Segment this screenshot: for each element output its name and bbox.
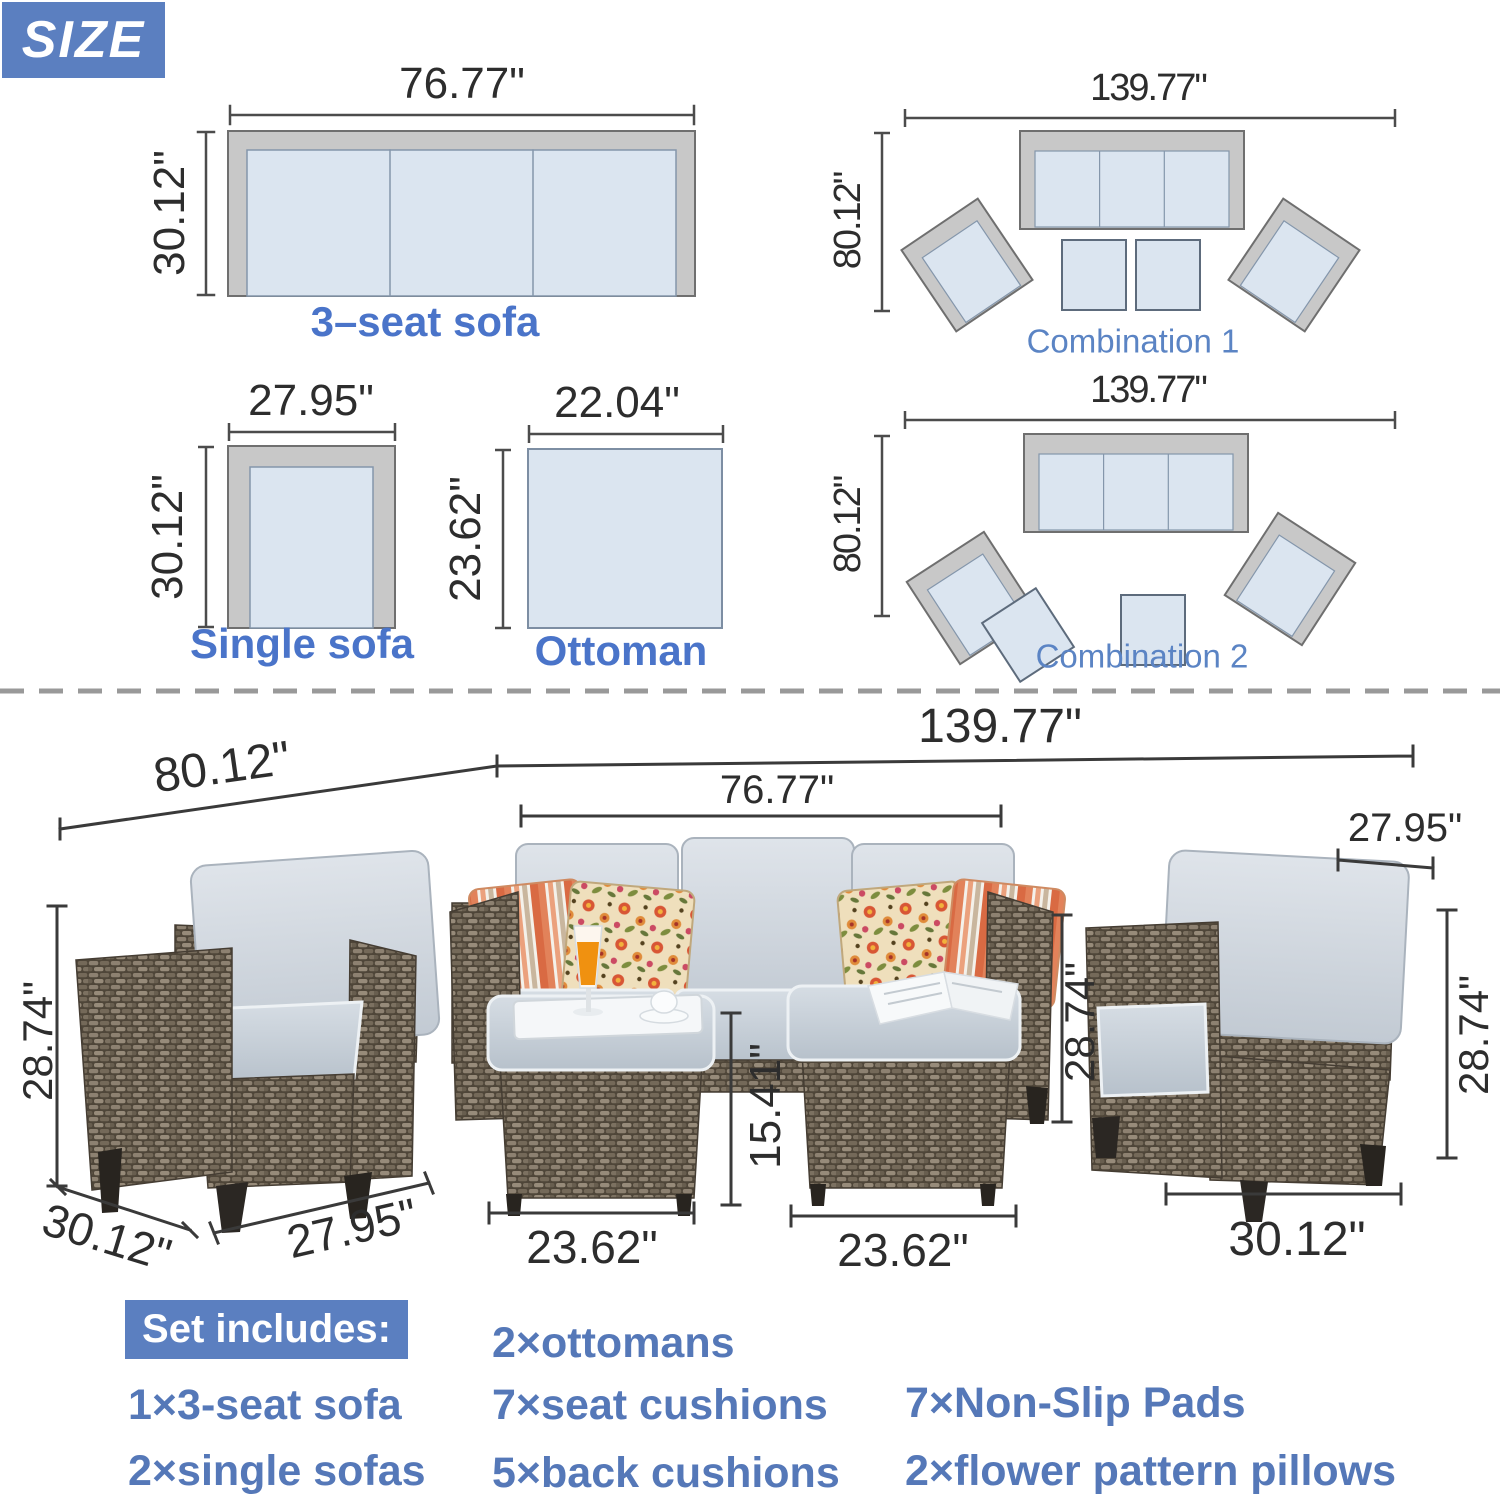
photo-dim-set-width: 139.77" [918, 703, 1082, 751]
size-badge: SIZE [2, 2, 165, 78]
photo-dim-ottoman-height: 15.41" [744, 1043, 788, 1169]
photo-dim-left-ottoman-width: 23.62" [526, 1224, 657, 1270]
photo-dim-sofa-width: 76.77" [720, 770, 834, 810]
photo-dim-right-chair-height: 28.74" [1453, 975, 1495, 1095]
glass-stem [586, 986, 591, 1012]
diagram-ottoman [495, 425, 723, 628]
dim-combo2-width: 139.77" [1090, 371, 1206, 409]
photo-dim-right-chair-depth: 30.12" [1228, 1216, 1365, 1264]
photo-left-armchair [76, 850, 440, 1233]
dim-combo1-width: 139.77" [1090, 69, 1206, 107]
photo-dim-right-ottoman-width: 23.62" [837, 1227, 968, 1273]
set-item-3seat-sofa: 1×3-seat sofa [128, 1384, 402, 1427]
set-item-flower-pillows: 2×flower pattern pillows [905, 1450, 1396, 1493]
dim-3seat-width: 76.77" [399, 62, 525, 106]
dim-ottoman-width: 22.04" [554, 381, 680, 425]
set-item-back-cushions: 5×back cushions [492, 1452, 840, 1495]
dim-combo2-depth: 80.12" [829, 477, 867, 574]
label-single-sofa: Single sofa [190, 623, 414, 665]
label-combination-1: Combination 1 [1027, 325, 1240, 358]
photo-right-armchair [1086, 850, 1410, 1222]
dim-3seat-depth: 30.12" [148, 150, 192, 276]
set-item-single-sofas: 2×single sofas [128, 1450, 426, 1493]
set-item-seat-cushions: 7×seat cushions [492, 1384, 828, 1427]
diagram-3seat-sofa [198, 106, 695, 296]
photo-dim-right-chair-top-width: 27.95" [1348, 808, 1462, 848]
size-infographic: SIZE 76.77" 30.12" 3–seat sofa 27.95" 30… [0, 0, 1500, 1500]
diagram-single-sofa [198, 423, 395, 628]
teacup [651, 991, 677, 1013]
set-item-ottomans: 2×ottomans [492, 1322, 735, 1365]
label-3seat-sofa: 3–seat sofa [311, 301, 540, 343]
label-combination-2: Combination 2 [1036, 640, 1249, 673]
dim-combo1-depth: 80.12" [829, 173, 867, 270]
diagram-combination-1 [874, 109, 1395, 331]
photo-dim-sofa-height: 28.74" [1059, 962, 1101, 1082]
dim-single-width: 27.95" [248, 379, 374, 423]
set-includes-badge: Set includes: [125, 1300, 408, 1359]
dim-ottoman-depth: 23.62" [444, 476, 488, 602]
dim-single-depth: 30.12" [146, 474, 190, 600]
photo-dim-left-chair-height: 28.74" [17, 981, 59, 1101]
set-item-nonslip-pads: 7×Non-Slip Pads [905, 1382, 1246, 1425]
label-ottoman: Ottoman [535, 630, 708, 672]
